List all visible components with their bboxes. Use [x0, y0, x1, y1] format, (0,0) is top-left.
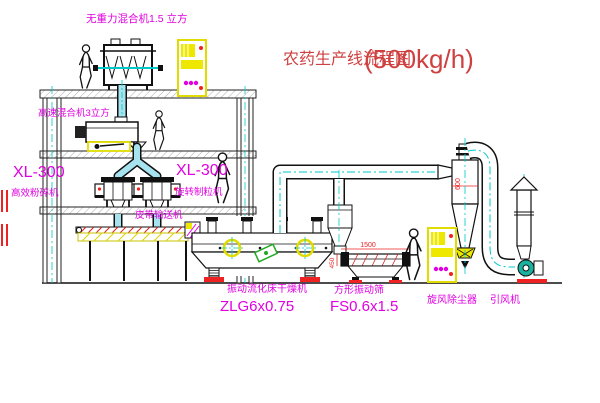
person-top-floor [80, 45, 93, 88]
dim-sieve-height: 450 [329, 257, 336, 268]
control-cabinet-ground [428, 228, 456, 282]
square-sieve [337, 249, 410, 283]
label-sieve: 方形振动筛 [334, 283, 384, 296]
belt-conveyor [76, 227, 192, 281]
label-granulator-model: XL-300 [176, 162, 228, 179]
label-crusher-model: XL-300 [13, 164, 65, 181]
label-cyclone: 旋风除尘器 [427, 293, 477, 306]
induced-draft-fan [517, 260, 547, 283]
label-fan: 引风机 [490, 293, 520, 306]
control-cabinet-top [178, 40, 206, 96]
diagram-capacity: (500kg/h) [364, 44, 474, 74]
label-sieve-model: FS0.6x1.5 [330, 298, 398, 315]
rotary-granulator-2 [134, 177, 180, 207]
zero-gravity-mixer [93, 39, 163, 90]
label-dryer: 振动流化床干燥机 [227, 282, 307, 295]
label-belt: 皮带输送机 [135, 209, 183, 221]
label-granulator: 旋转制粒机 [175, 186, 223, 198]
label-crusher: 高效粉碎机 [11, 187, 59, 199]
fluid-bed-dryer [185, 216, 336, 282]
cad-drawing: 无重力混合机1.5 立方 农药生产线流程图 (500kg/h) 高速混合机3立方… [0, 0, 600, 403]
label-dryer-model: ZLG6x0.75 [220, 298, 294, 315]
person-second-floor [153, 111, 164, 150]
label-second-mixer: 高速混合机3立方 [38, 107, 110, 119]
process-flow-diagram: 无重力混合机1.5 立方 农药生产线流程图 (500kg/h) 高速混合机3立方… [0, 0, 600, 403]
left-wall-marks [1, 190, 8, 246]
label-top-mixer: 无重力混合机1.5 立方 [86, 12, 188, 25]
dim-sieve-length: 1500 [360, 242, 376, 249]
dim-cyclone-diameter: 600 [455, 178, 462, 190]
